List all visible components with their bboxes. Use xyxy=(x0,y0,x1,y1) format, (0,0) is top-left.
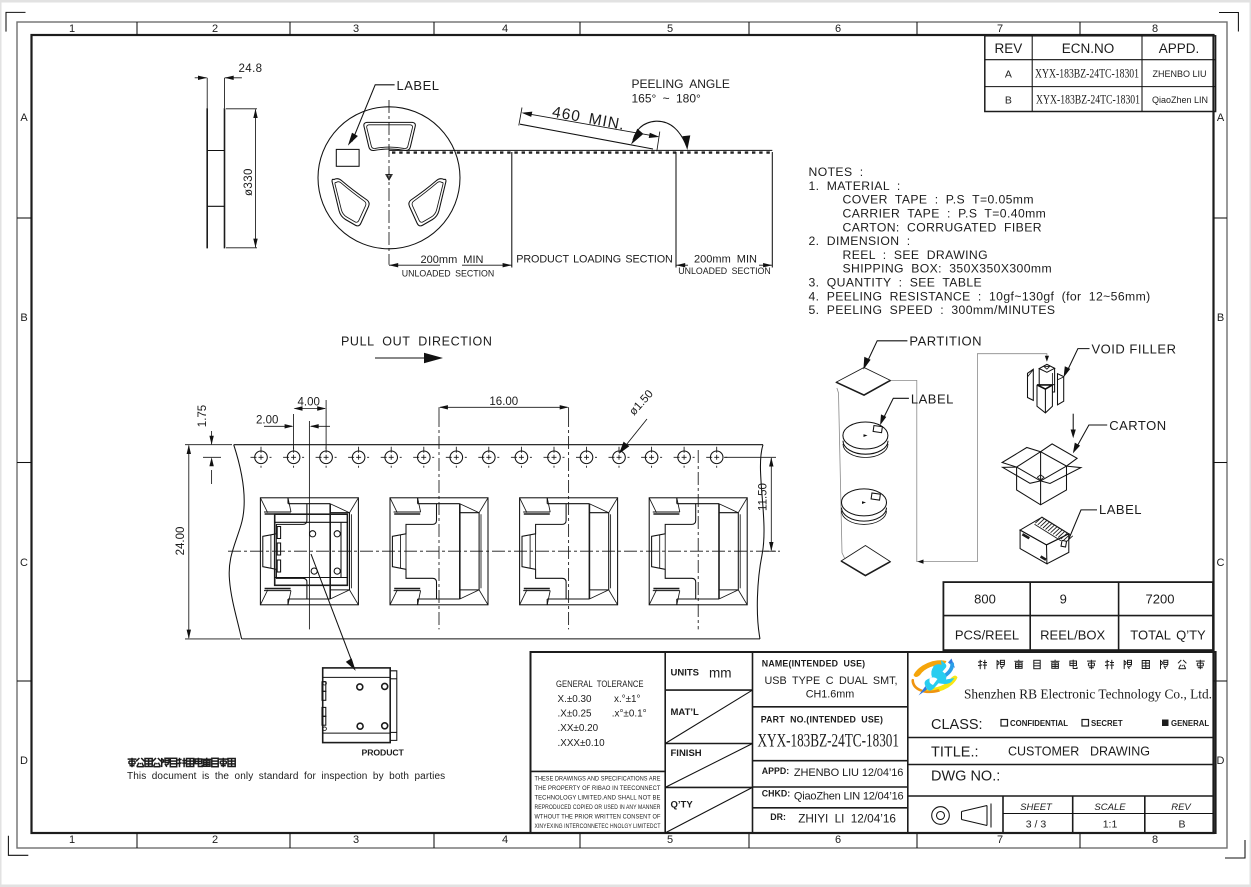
svg-text:CLASS:: CLASS: xyxy=(931,717,983,733)
svg-text:XINYEXING INTERCONNETEC HNOLGY: XINYEXING INTERCONNETEC HNOLGY LIMITEDCT xyxy=(535,823,661,830)
svg-text:LABEL: LABEL xyxy=(397,78,440,93)
svg-text:DRAWING: DRAWING xyxy=(1090,745,1150,759)
svg-text:800: 800 xyxy=(974,592,996,607)
svg-text:.x°±0.1°: .x°±0.1° xyxy=(612,709,647,720)
svg-text:.XXX±0.10: .XXX±0.10 xyxy=(558,738,606,749)
svg-text:7: 7 xyxy=(997,23,1003,35)
svg-text:USB TYPE C DUAL SMT,: USB TYPE C DUAL SMT, xyxy=(765,675,898,687)
svg-text:REV: REV xyxy=(995,41,1023,56)
svg-text:WTHOUT THE PRIOR WRITTEN CONS: WTHOUT THE PRIOR WRITTEN CONSENT OF xyxy=(535,814,661,821)
svg-text:A: A xyxy=(1217,112,1225,124)
svg-text:B: B xyxy=(1217,312,1224,324)
svg-text:PRODUCT LOADING SECTION: PRODUCT LOADING SECTION xyxy=(516,254,672,266)
svg-text:1:1: 1:1 xyxy=(1103,819,1118,831)
svg-text:B: B xyxy=(20,312,27,324)
svg-text:CUSTOMER: CUSTOMER xyxy=(1008,745,1079,759)
svg-text:24.8: 24.8 xyxy=(239,63,263,75)
svg-text:APPD:: APPD: xyxy=(762,766,789,776)
svg-text:REEL/BOX: REEL/BOX xyxy=(1040,628,1105,643)
svg-text:SHIPPING BOX: 350X350X300mm: SHIPPING BOX: 350X350X300mm xyxy=(843,262,1053,276)
svg-text:XYX-183BZ-24TC-18301: XYX-183BZ-24TC-18301 xyxy=(1036,92,1140,107)
svg-text:REPRODUCED COPIED OR USED IN A: REPRODUCED COPIED OR USED IN ANY MANNER xyxy=(535,804,661,811)
svg-text:8: 8 xyxy=(1152,23,1158,35)
svg-text:D: D xyxy=(1217,755,1225,767)
svg-text:2: 2 xyxy=(212,23,218,35)
svg-text:ZHENBO LIU 12/04’16: ZHENBO LIU 12/04’16 xyxy=(794,767,903,779)
svg-text:THE PROPERTY OF RIBAO IN TEECO: THE PROPERTY OF RIBAO IN TEECONNECT xyxy=(535,785,661,792)
svg-text:ZHIYI LI 12/04’16: ZHIYI LI 12/04’16 xyxy=(798,812,896,826)
svg-text:SHEET: SHEET xyxy=(1020,802,1053,813)
svg-text:XYX-183BZ-24TC-18301: XYX-183BZ-24TC-18301 xyxy=(758,731,900,752)
svg-text:THESE DRAWINGS AND SPECIFICATI: THESE DRAWINGS AND SPECIFICATIONS ARE xyxy=(535,776,661,783)
svg-text:APPD.: APPD. xyxy=(1159,41,1200,56)
svg-text:LABEL: LABEL xyxy=(911,391,954,406)
svg-text:NAME(INTENDED USE): NAME(INTENDED USE) xyxy=(762,659,866,669)
svg-text:3: 3 xyxy=(353,834,359,846)
svg-text:2.00: 2.00 xyxy=(256,415,278,427)
svg-text:LABEL: LABEL xyxy=(1099,502,1142,517)
svg-text:REV: REV xyxy=(1171,802,1192,813)
svg-text:NOTES :: NOTES : xyxy=(809,165,864,179)
svg-text:Shenzhen RB Electronic Technol: Shenzhen RB Electronic Technology Co., L… xyxy=(964,687,1212,702)
svg-text:PRODUCT: PRODUCT xyxy=(362,748,405,758)
svg-text:mm: mm xyxy=(709,666,732,681)
svg-text:4. PEELING RESISTANCE : 10gf~: 4. PEELING RESISTANCE : 10gf~130gf (for … xyxy=(809,289,1151,303)
svg-text:UNITS: UNITS xyxy=(671,668,700,679)
svg-text:ø330: ø330 xyxy=(243,168,255,196)
svg-text:3: 3 xyxy=(353,23,359,35)
svg-text:7200: 7200 xyxy=(1146,592,1175,607)
svg-text:200mm MIN: 200mm MIN xyxy=(421,254,484,266)
svg-text:Q’TY: Q’TY xyxy=(671,800,694,811)
svg-text:9: 9 xyxy=(1060,592,1067,607)
svg-text:REEL : SEE DRAWING: REEL : SEE DRAWING xyxy=(843,248,988,262)
svg-text:200mm MIN: 200mm MIN xyxy=(694,254,757,266)
svg-text:5. PEELING SPEED : 300mm/MINU: 5. PEELING SPEED : 300mm/MINUTES xyxy=(809,303,1056,317)
svg-text:16.00: 16.00 xyxy=(489,396,518,408)
svg-text:CHKD:: CHKD: xyxy=(762,789,790,799)
svg-text:165° ~ 180°: 165° ~ 180° xyxy=(632,92,702,106)
svg-text:1: 1 xyxy=(69,23,75,35)
svg-text:GENERAL TOLERANCE: GENERAL TOLERANCE xyxy=(556,679,644,689)
svg-text:7: 7 xyxy=(997,834,1003,846)
svg-text:2: 2 xyxy=(212,834,218,846)
svg-text:4: 4 xyxy=(502,23,508,35)
svg-text:3 / 3: 3 / 3 xyxy=(1026,819,1047,831)
svg-text:3. QUANTITY : SEE TABLE: 3. QUANTITY : SEE TABLE xyxy=(809,276,983,290)
svg-text:PULL OUT DIRECTION: PULL OUT DIRECTION xyxy=(341,335,492,349)
svg-text:4.00: 4.00 xyxy=(298,397,320,409)
svg-text:B: B xyxy=(1005,95,1012,107)
svg-text:PEELING ANGLE: PEELING ANGLE xyxy=(632,77,730,91)
svg-text:PCS/REEL: PCS/REEL xyxy=(955,628,1019,643)
svg-text:ECN.NO: ECN.NO xyxy=(1062,41,1115,56)
svg-text:QiaoZhen LIN: QiaoZhen LIN xyxy=(1152,95,1208,105)
svg-text:CONFIDENTIAL: CONFIDENTIAL xyxy=(1010,719,1068,728)
svg-text:QiaoZhen LIN 12/04’16: QiaoZhen LIN 12/04’16 xyxy=(794,791,904,803)
svg-text:VOID FILLER: VOID FILLER xyxy=(1092,342,1177,357)
svg-text:A: A xyxy=(1005,69,1012,81)
svg-text:DWG NO.:: DWG NO.: xyxy=(931,769,1000,785)
svg-text:D: D xyxy=(20,755,28,767)
svg-text:4: 4 xyxy=(502,834,508,846)
svg-text:CARRIER TAPE : P.S T=0.40mm: CARRIER TAPE : P.S T=0.40mm xyxy=(843,207,1047,221)
svg-text:PARTITION: PARTITION xyxy=(909,334,982,349)
svg-text:x.°±1°: x.°±1° xyxy=(614,694,641,705)
svg-text:5: 5 xyxy=(667,834,673,846)
svg-text:GENERAL: GENERAL xyxy=(1171,719,1209,728)
svg-text:8: 8 xyxy=(1152,834,1158,846)
svg-text:.XX±0.20: .XX±0.20 xyxy=(558,723,599,734)
svg-text:.X±0.25: .X±0.25 xyxy=(558,709,592,720)
svg-text:DR:: DR: xyxy=(770,812,786,822)
svg-text:1. MATERIAL :: 1. MATERIAL : xyxy=(809,179,901,193)
svg-text:CH1.6mm: CH1.6mm xyxy=(806,689,855,701)
svg-text:CARTON: CORRUGATED FIBER: CARTON: CORRUGATED FIBER xyxy=(843,220,1042,234)
svg-text:C: C xyxy=(1217,557,1225,569)
svg-text:X.±0.30: X.±0.30 xyxy=(558,694,592,705)
svg-text:2. DIMENSION :: 2. DIMENSION : xyxy=(809,234,911,248)
svg-text:SECRET: SECRET xyxy=(1091,719,1123,728)
svg-text:A: A xyxy=(20,112,28,124)
svg-text:SCALE: SCALE xyxy=(1094,802,1126,813)
svg-text:11.50: 11.50 xyxy=(758,483,770,511)
svg-text:6: 6 xyxy=(835,834,841,846)
svg-text:B: B xyxy=(1178,819,1185,831)
svg-text:This document is the only stan: This document is the only standard for i… xyxy=(127,771,445,782)
svg-text:1.75: 1.75 xyxy=(197,405,209,427)
svg-text:TECHNOLOGY LIMITED.AND SHALL N: TECHNOLOGY LIMITED.AND SHALL NOT BE xyxy=(535,795,661,802)
svg-text:UNLOADED SECTION: UNLOADED SECTION xyxy=(678,266,770,276)
svg-text:CARTON: CARTON xyxy=(1109,418,1166,433)
svg-text:FINISH: FINISH xyxy=(671,748,702,759)
svg-text:MAT’L: MAT’L xyxy=(671,707,700,718)
svg-text:COVER TAPE : P.S T=0.05mm: COVER TAPE : P.S T=0.05mm xyxy=(843,193,1034,207)
svg-text:ZHENBO LIU: ZHENBO LIU xyxy=(1152,69,1206,79)
svg-text:XYX-183BZ-24TC-18301: XYX-183BZ-24TC-18301 xyxy=(1035,66,1139,81)
svg-text:UNLOADED SECTION: UNLOADED SECTION xyxy=(402,269,494,279)
svg-text:6: 6 xyxy=(835,23,841,35)
svg-text:24.00: 24.00 xyxy=(175,527,187,556)
svg-text:C: C xyxy=(20,557,28,569)
svg-text:1: 1 xyxy=(69,834,75,846)
svg-text:PART NO.(INTENDED USE): PART NO.(INTENDED USE) xyxy=(761,715,883,725)
svg-text:TOTAL Q’TY: TOTAL Q’TY xyxy=(1130,628,1206,643)
svg-text:TITLE.:: TITLE.: xyxy=(931,745,979,761)
svg-text:5: 5 xyxy=(667,23,673,35)
